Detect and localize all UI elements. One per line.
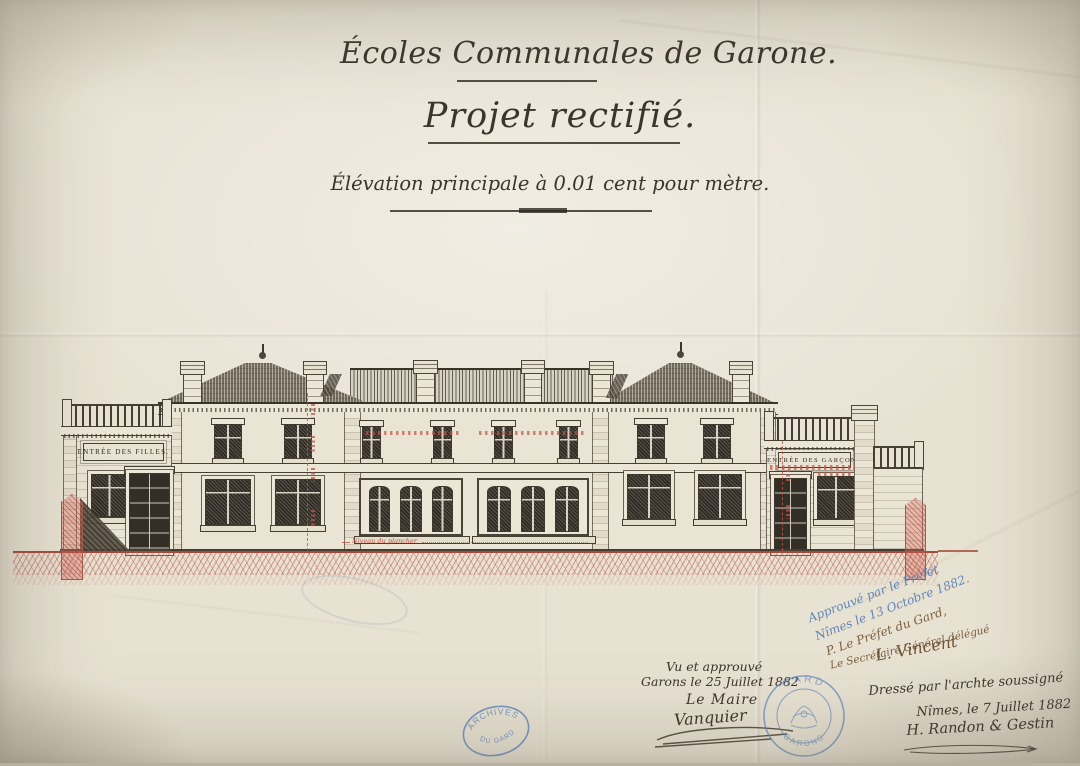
boys-entrance-door: [774, 478, 807, 552]
dentil-course: [767, 447, 854, 451]
document-title: Écoles Communales de Garone.: [340, 36, 770, 71]
dimension-figures: [311, 468, 315, 482]
arched-window: [555, 486, 579, 532]
upper-window: [703, 424, 731, 460]
upper-window: [637, 424, 665, 460]
ground-window: [627, 474, 671, 519]
dimension-figures: [786, 505, 790, 519]
window-sill: [282, 458, 314, 464]
window-sill: [270, 525, 326, 532]
scale-note: Élévation principale à 0.01 cent pour mè…: [330, 172, 770, 195]
dimension-figures-row: [770, 465, 855, 470]
dimension-figures: [311, 404, 315, 418]
dimension-line: [782, 441, 783, 551]
ground-line-extension: [938, 550, 978, 552]
paper-sheet: Écoles Communales de Garone. Projet rect…: [0, 0, 1080, 763]
chimney: [592, 372, 611, 405]
ground-hatch: [13, 551, 938, 575]
window-sill: [622, 519, 676, 526]
fold-crease: [754, 0, 761, 763]
dimension-figures: [311, 436, 315, 452]
gate-pier: [854, 419, 875, 551]
central-roof: [350, 368, 614, 405]
window-sill: [212, 458, 244, 464]
right-wall-window: [817, 476, 855, 519]
cresting-post: [162, 399, 172, 429]
chimney: [416, 371, 435, 404]
cresting-post: [62, 399, 72, 429]
dimension-figures-row: [366, 431, 462, 435]
junction-pilaster: [592, 412, 609, 551]
floor-note-leader: [422, 542, 588, 543]
left-pink-pillar: [61, 494, 83, 580]
window-sill: [701, 458, 733, 464]
mairie-round-stamp: GARD GARONS: [761, 673, 847, 759]
triple-window-group: [359, 478, 463, 536]
chimney-cap: [413, 360, 438, 374]
floor-note-dash: [342, 542, 350, 543]
round-stamp-emblem: [791, 706, 817, 728]
document-subtitle: Projet rectifié.: [420, 96, 700, 136]
gate-pier-cap: [851, 405, 878, 421]
fold-crease: [0, 331, 1080, 338]
ground-window: [698, 474, 742, 519]
archives-stamp-bottom-text: DU GARD: [477, 727, 518, 749]
dimension-figures: [311, 510, 315, 526]
dimension-figures-row: [818, 472, 854, 476]
girls-entrance-door: [129, 473, 170, 552]
architect-flourish: [900, 742, 1040, 756]
girls-entrance-plaque: ENTRÉE DES FILLES.: [83, 443, 164, 461]
svg-text:GARONS: GARONS: [782, 732, 827, 748]
window-sill: [360, 458, 383, 464]
triple-window-group: [477, 478, 589, 536]
window-sill: [693, 519, 747, 526]
window-sill: [635, 458, 667, 464]
chimney: [183, 372, 202, 405]
roof-finial: [259, 352, 266, 359]
chimney-cap: [729, 361, 753, 375]
mayor-line1: Vu et approuvé: [666, 659, 762, 674]
dimension-line: [307, 393, 308, 551]
subtitle-underline: [428, 142, 680, 144]
dentil-course: [64, 434, 169, 438]
arched-window: [432, 486, 453, 532]
upper-window: [214, 424, 242, 460]
window-sill: [200, 525, 256, 532]
arched-window: [521, 486, 545, 532]
window-sill: [431, 458, 454, 464]
cresting-post: [764, 411, 774, 443]
floor-level-note: Niveau du plancher: [352, 537, 417, 545]
chimney: [306, 372, 324, 404]
ground-hatch-faint: [13, 573, 938, 585]
window-sill: [492, 458, 515, 464]
string-course: [166, 463, 774, 473]
architect-line1: Dressé par l'archte soussigné: [868, 670, 1064, 699]
mayor-line3: Le Maire: [686, 692, 758, 708]
arched-window: [487, 486, 511, 532]
chimney-cap: [521, 360, 545, 374]
girls-entrance-label: ENTRÉE DES FILLES.: [78, 448, 170, 456]
chimney-cap: [180, 361, 205, 375]
round-stamp-bottom-text: GARONS: [782, 732, 827, 748]
svg-text:DU GARD: DU GARD: [477, 727, 518, 749]
window-sill: [557, 458, 580, 464]
chimney: [524, 371, 542, 404]
arched-window: [400, 486, 421, 532]
title-underline: [457, 80, 597, 82]
chimney-cap: [589, 361, 614, 375]
left-wall-window: [91, 474, 128, 517]
chimney-cap: [303, 361, 327, 375]
window-sill: [813, 519, 859, 526]
ground-window: [205, 479, 251, 525]
dimension-figures-row: [479, 431, 587, 435]
arched-window: [369, 486, 390, 532]
scale-underline-heavy: [519, 208, 567, 213]
cresting-post: [914, 441, 924, 470]
chimney: [732, 372, 750, 405]
main-facade-wall: [166, 412, 776, 551]
roof-finial: [677, 351, 684, 358]
dimension-figures: [786, 470, 790, 482]
archives-oval-stamp: ARCHIVES DU GARD: [455, 696, 538, 766]
